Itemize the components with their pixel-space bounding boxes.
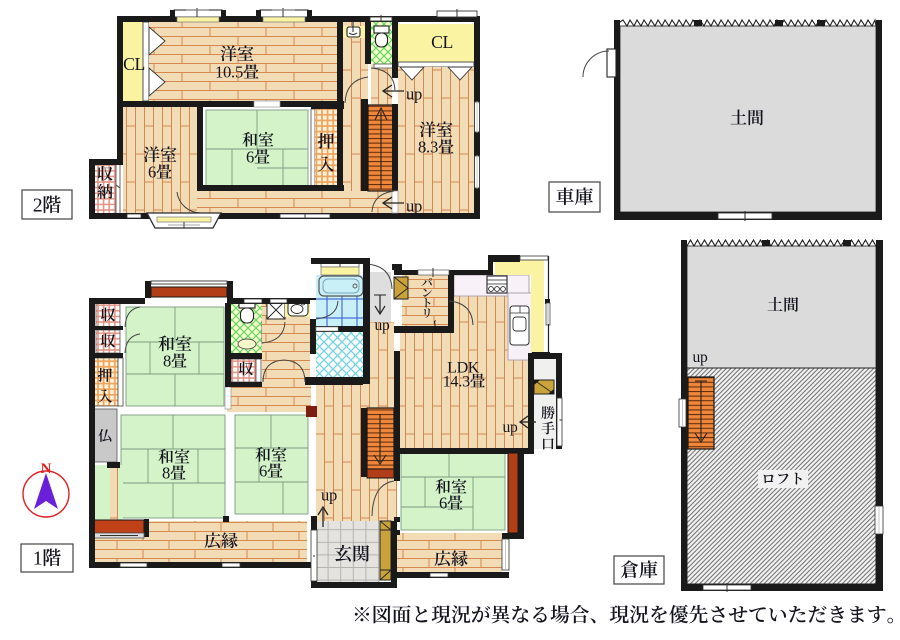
svg-text:6: 6 xyxy=(259,461,267,480)
svg-text:p: p xyxy=(700,349,708,366)
svg-text:C: C xyxy=(431,32,443,52)
svg-text:p: p xyxy=(329,485,337,504)
svg-text:L: L xyxy=(443,32,454,52)
svg-text:3: 3 xyxy=(430,137,438,156)
svg-text:5: 5 xyxy=(235,62,243,81)
svg-text:L: L xyxy=(135,54,146,74)
svg-text:2: 2 xyxy=(33,195,43,217)
svg-text:6: 6 xyxy=(148,162,156,181)
svg-text:1: 1 xyxy=(33,548,43,570)
svg-text:8: 8 xyxy=(162,463,170,482)
svg-text:p: p xyxy=(382,317,390,334)
svg-text:p: p xyxy=(414,196,422,215)
svg-text:p: p xyxy=(510,419,518,436)
svg-text:p: p xyxy=(414,84,422,103)
svg-text:8: 8 xyxy=(163,351,171,370)
svg-text:3: 3 xyxy=(462,373,470,390)
svg-text:6: 6 xyxy=(246,147,254,166)
svg-text:C: C xyxy=(123,54,135,74)
svg-text:6: 6 xyxy=(439,493,447,512)
